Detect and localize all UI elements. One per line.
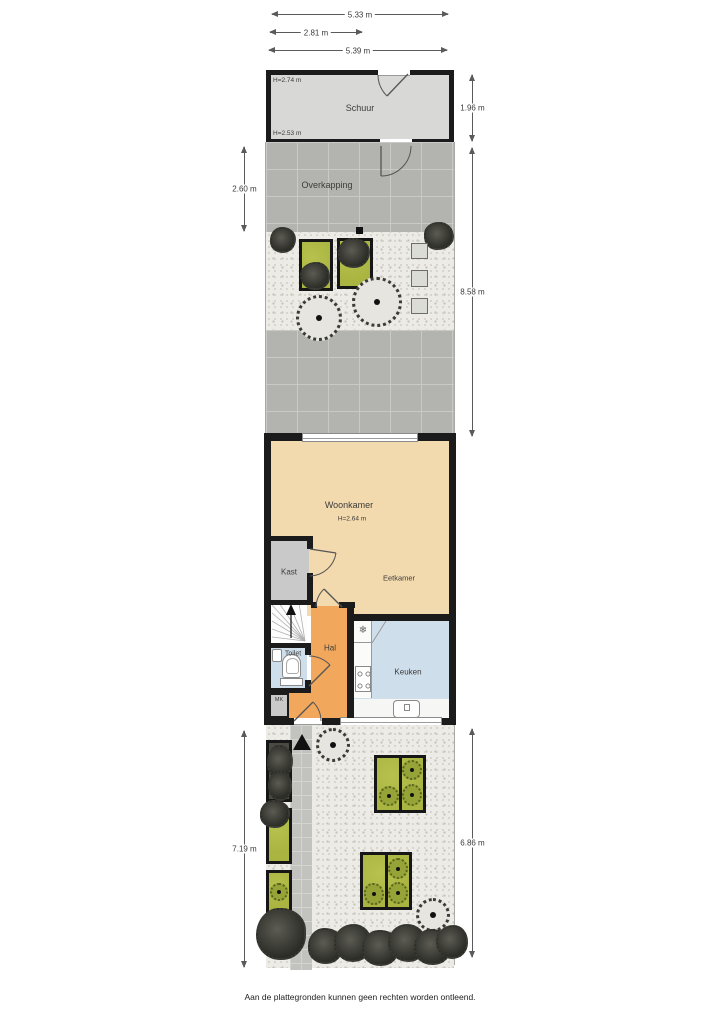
planter-group xyxy=(374,755,426,813)
stove-icon xyxy=(355,666,371,692)
dimension-back-garden-depth: 8.58 m xyxy=(472,148,473,436)
planter-bed xyxy=(266,740,292,802)
room-label-overkapping: Overkapping xyxy=(301,180,352,190)
dimension-label: 6.86 m xyxy=(457,839,487,848)
sink-icon xyxy=(393,700,420,718)
front-door-swing xyxy=(292,692,324,724)
stepping-stone xyxy=(411,270,428,287)
room-label-keuken: Keuken xyxy=(394,668,421,677)
dimension-label: 8.58 m xyxy=(457,288,487,297)
round-plant xyxy=(402,784,422,806)
staircase xyxy=(271,602,307,643)
round-shrub xyxy=(316,728,350,762)
room-label-eetkamer: Eetkamer xyxy=(383,574,415,583)
stepping-stone xyxy=(411,298,428,314)
round-plant xyxy=(402,760,422,780)
room-label-woonkamer: Woonkamer xyxy=(325,500,373,510)
bush xyxy=(270,227,296,253)
room-label-toilet: Toilet xyxy=(285,651,301,658)
dimension-shed-width: 5.33 m xyxy=(272,14,448,15)
overkapping-paving xyxy=(266,142,454,232)
round-plant xyxy=(270,883,288,901)
stairs-up-arrow xyxy=(286,604,296,615)
toilet-door-swing xyxy=(307,654,335,688)
ceiling-height-schuur-back: H=2.53 m xyxy=(273,130,301,137)
room-label-kast: Kast xyxy=(281,568,297,577)
bush xyxy=(256,908,306,960)
dimension-plot-width: 5.39 m xyxy=(269,50,447,51)
wall-keuken-top xyxy=(354,614,456,621)
round-plant xyxy=(379,786,399,806)
planter-group xyxy=(360,852,412,910)
wall-kast-bottom xyxy=(269,600,313,605)
freezer-icon: ❄ xyxy=(354,621,372,643)
bush xyxy=(424,222,454,250)
ceiling-height-woonkamer: H=2.64 m xyxy=(338,516,366,523)
dimension-label: 2.81 m xyxy=(301,28,331,37)
round-plant xyxy=(388,882,408,904)
dimension-inner-width: 2.81 m xyxy=(270,32,362,33)
hedge-bush xyxy=(436,925,468,959)
dimension-overkapping-depth: 2.60 m xyxy=(244,147,245,231)
wall-house-left xyxy=(264,433,271,725)
toilet-bowl-icon xyxy=(282,654,301,678)
terrace-paving xyxy=(266,330,454,433)
stepping-stone xyxy=(411,243,428,259)
faucet xyxy=(404,704,410,711)
ceiling-height-schuur-front: H=2.74 m xyxy=(273,77,301,84)
shed-door-swing xyxy=(376,73,412,101)
wall-hal-keuken xyxy=(347,602,354,718)
dimension-front-garden-depth-left: 7.19 m xyxy=(244,731,245,967)
bush xyxy=(300,262,330,290)
toilet-bowl-inner xyxy=(286,658,299,674)
room-label-meterkast: MK xyxy=(275,697,283,703)
shed-back-door-swing xyxy=(379,144,413,178)
bush xyxy=(260,800,290,828)
hal-door-swing xyxy=(314,579,346,611)
dimension-label: 2.60 m xyxy=(229,185,259,194)
dimension-label: 1.96 m xyxy=(457,104,487,113)
dimension-shed-depth: 1.96 m xyxy=(472,75,473,141)
dimension-label: 5.33 m xyxy=(345,10,375,19)
bush xyxy=(268,771,292,801)
wall-house-right xyxy=(449,433,456,725)
bush xyxy=(338,238,370,268)
fence-left xyxy=(265,142,266,433)
counter-corner-line xyxy=(371,620,387,644)
fence-right xyxy=(454,142,455,433)
toilet-tank-icon xyxy=(280,678,303,686)
room-label-hal: Hal xyxy=(324,644,336,653)
round-plant xyxy=(388,858,408,879)
dimension-label: 7.19 m xyxy=(229,845,259,854)
room-label-schuur: Schuur xyxy=(346,103,375,113)
dimension-label: 5.39 m xyxy=(343,46,373,55)
garden-post xyxy=(356,227,363,234)
round-shrub xyxy=(352,277,402,327)
planter-divider xyxy=(385,855,388,907)
floor-plan: 5.33 m 2.81 m 5.39 m 1.96 m 2.60 m 8.58 … xyxy=(0,0,720,1018)
kast-door-swing xyxy=(308,547,340,579)
disclaimer-text: Aan de plattegronden kunnen geen rechten… xyxy=(0,992,720,1002)
round-shrub xyxy=(296,295,342,341)
dimension-front-garden-depth-right: 6.86 m xyxy=(472,729,473,957)
north-arrow-icon xyxy=(293,734,311,750)
round-plant xyxy=(364,883,384,905)
window-back xyxy=(302,433,418,442)
toilet-sink-icon xyxy=(272,649,282,662)
